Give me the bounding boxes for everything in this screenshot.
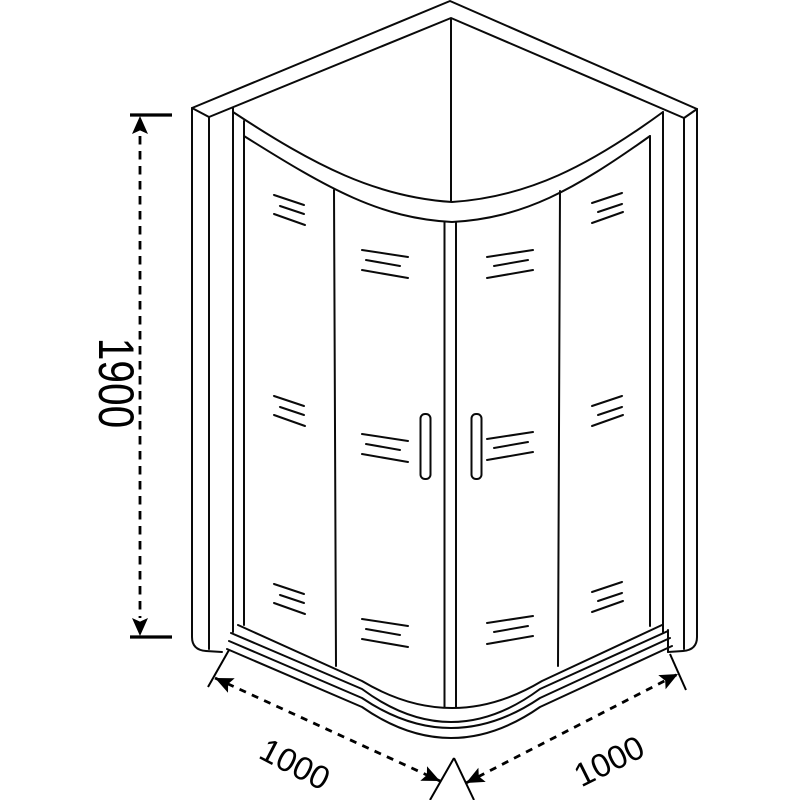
svg-text:1900: 1900 [88,338,144,428]
